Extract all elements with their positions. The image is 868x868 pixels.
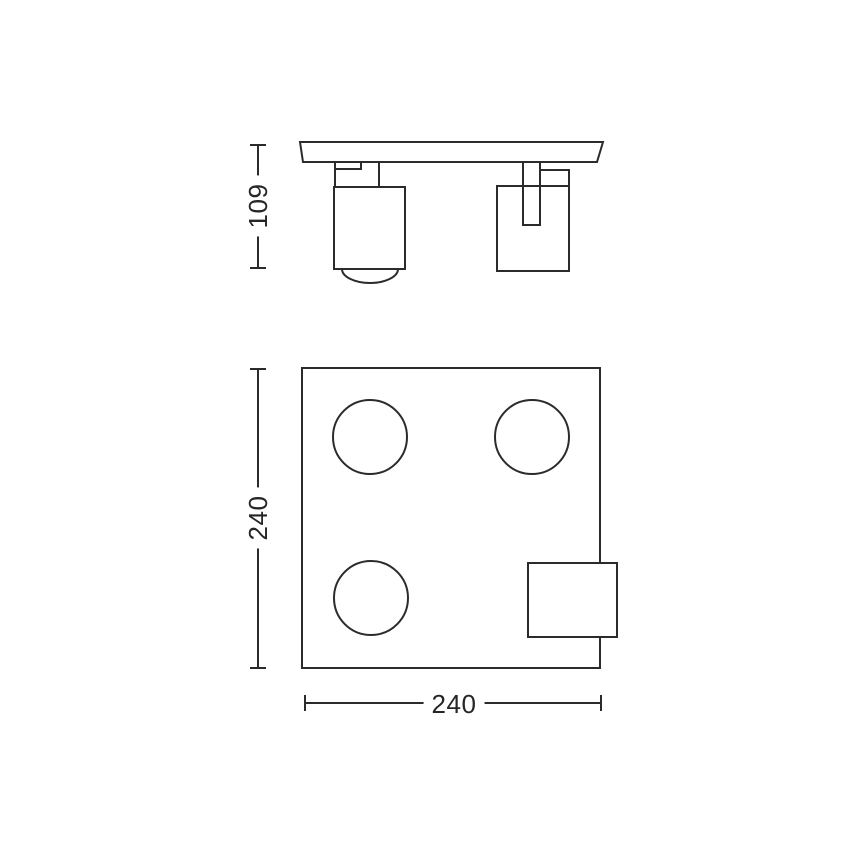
side-spot-square	[528, 563, 617, 637]
spot-circle-bottom-left	[334, 561, 408, 635]
side-view	[251, 142, 603, 283]
mount-plate-side	[300, 142, 603, 162]
left-spot-lens-arc	[342, 269, 398, 283]
plan-view	[251, 368, 617, 710]
spot-circle-top-right	[495, 400, 569, 474]
right-spot-body	[497, 186, 569, 271]
left-spot-bracket	[335, 162, 379, 187]
line-art	[0, 0, 868, 868]
right-spot-bracket	[540, 170, 569, 186]
height-dimension-label: 109	[243, 176, 273, 237]
right-spot-stem	[523, 162, 540, 225]
plan-width-dimension-label: 240	[424, 689, 485, 719]
plan-height-dimension-label: 240	[243, 488, 273, 549]
left-spot-body	[334, 187, 405, 269]
drawing-canvas: 109 240 240	[0, 0, 868, 868]
spot-circle-top-left	[333, 400, 407, 474]
